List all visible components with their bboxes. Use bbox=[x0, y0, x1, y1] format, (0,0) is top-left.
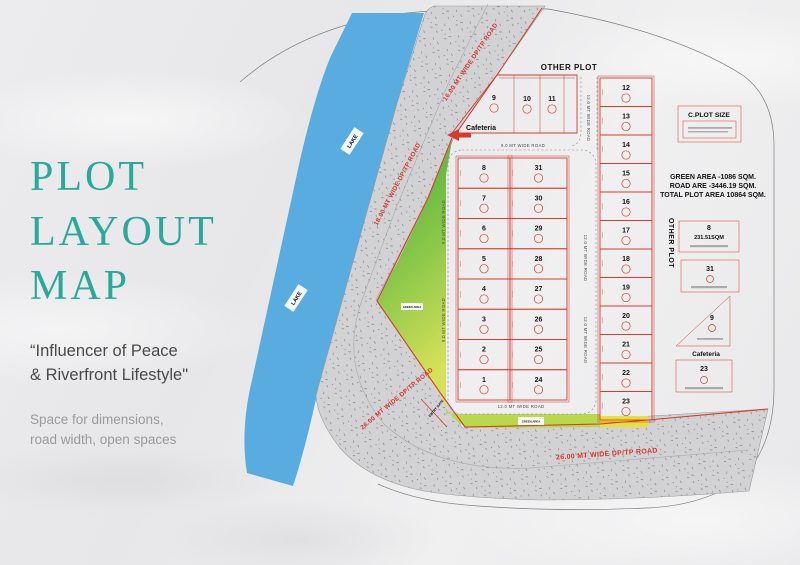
plot-marker-circle bbox=[480, 355, 488, 363]
plot-number-11: 11 bbox=[548, 96, 556, 103]
road-label: 12.0 MT WIDE ROAD bbox=[583, 235, 588, 282]
plot-marker-circle bbox=[701, 377, 708, 384]
stat-total-area: TOTAL PLOT AREA 10864 SQM. bbox=[660, 192, 766, 199]
plot-marker-circle bbox=[534, 295, 542, 303]
plot-cell-28 bbox=[510, 249, 567, 279]
detail-cafeteria-label: Cafeteria bbox=[692, 351, 720, 358]
dimension-tick bbox=[602, 260, 603, 266]
plot-marker-circle bbox=[548, 105, 556, 113]
plot-grid-central_left: 87654321 bbox=[456, 156, 512, 402]
dimension-tick bbox=[602, 118, 603, 124]
plot-marker-circle bbox=[622, 179, 630, 187]
dimension-tick bbox=[512, 200, 513, 206]
detail-area: 231.51SQM bbox=[694, 235, 724, 241]
plot-number-25: 25 bbox=[535, 347, 543, 354]
dimension-tick bbox=[602, 374, 603, 380]
plot-cell-7 bbox=[458, 188, 510, 218]
plot-number-19: 19 bbox=[622, 285, 630, 292]
dimension-tick bbox=[512, 170, 513, 176]
plot-number-16: 16 bbox=[622, 199, 630, 206]
plot-number-29: 29 bbox=[535, 226, 543, 233]
plot-marker-circle bbox=[534, 234, 542, 242]
road-label: 12.0 MT WIDE ROAD bbox=[586, 95, 591, 142]
page: PLOT LAYOUT MAP “Influencer of Peace & R… bbox=[0, 0, 800, 565]
road-label: 12.0 MT WIDE ROAD bbox=[583, 317, 588, 364]
plot-marker-circle bbox=[622, 151, 630, 159]
plot-marker-circle bbox=[707, 276, 714, 283]
plot-grid-east: 121314151617181920212223 bbox=[598, 76, 654, 422]
plot-number-8: 8 bbox=[482, 165, 486, 172]
plot-marker-circle bbox=[622, 94, 630, 102]
plot-number-15: 15 bbox=[622, 171, 630, 178]
plot-number-6: 6 bbox=[482, 226, 486, 233]
plot-number-20: 20 bbox=[622, 313, 630, 320]
green-area-label-2: GREEN AREA bbox=[518, 417, 544, 425]
plot-marker-circle bbox=[534, 325, 542, 333]
plot-marker-circle bbox=[534, 265, 542, 273]
detail-number: 8 bbox=[707, 225, 711, 232]
plot-number-12: 12 bbox=[622, 85, 630, 92]
plot-cell-25 bbox=[510, 340, 567, 370]
svg-text:GREEN AREA: GREEN AREA bbox=[522, 420, 541, 424]
plot-number-22: 22 bbox=[622, 370, 630, 377]
dimension-tick bbox=[460, 200, 461, 206]
detail-fine-print bbox=[685, 387, 723, 389]
plot-cell-2 bbox=[458, 340, 510, 370]
dimension-tick bbox=[602, 203, 603, 209]
plot-marker-circle bbox=[622, 208, 630, 216]
dimension-tick bbox=[602, 89, 603, 95]
plot-marker-circle bbox=[534, 386, 542, 394]
road-label: 12.0 MT WIDE ROAD bbox=[498, 404, 545, 409]
plot-number-18: 18 bbox=[622, 256, 630, 263]
green-area-label-1: GREEN AREA bbox=[401, 303, 423, 310]
detail-number: 9 bbox=[710, 315, 714, 322]
plot-marker-circle bbox=[622, 122, 630, 130]
plot-cell-24 bbox=[510, 370, 567, 400]
cafeteria-label: Cafeteria bbox=[466, 125, 496, 132]
road-label: 9.0 MT WIDE ROAD bbox=[441, 298, 446, 342]
plot-cell-5 bbox=[458, 249, 510, 279]
plot-number-1: 1 bbox=[482, 377, 486, 384]
plot-marker-circle bbox=[480, 386, 488, 394]
dimension-tick bbox=[512, 231, 513, 237]
plot-marker-circle bbox=[622, 379, 630, 387]
dimension-tick bbox=[602, 317, 603, 323]
plot-layout-map: Cafeteria OTHER PLOT OTHER PLOT GREEN AR… bbox=[0, 0, 800, 565]
plot-number-9: 9 bbox=[492, 95, 496, 102]
plot-marker-circle bbox=[534, 174, 542, 182]
dimension-tick bbox=[512, 382, 513, 388]
detail-number: 23 bbox=[700, 366, 708, 373]
dimension-tick bbox=[602, 289, 603, 295]
plot-cell-4 bbox=[458, 279, 510, 309]
plot-number-31: 31 bbox=[535, 165, 543, 172]
plot-cell-1 bbox=[458, 370, 510, 400]
detail-fine-print bbox=[691, 286, 727, 288]
svg-text:GREEN AREA: GREEN AREA bbox=[403, 305, 422, 309]
dimension-tick bbox=[602, 346, 603, 352]
detail-box-plot-8: 8231.51SQM bbox=[679, 221, 739, 252]
plot-number-10: 10 bbox=[523, 96, 531, 103]
dimension-tick bbox=[460, 261, 461, 267]
dimension-tick bbox=[602, 146, 603, 152]
plot-marker-circle bbox=[480, 325, 488, 333]
detail-fine-print bbox=[697, 338, 723, 340]
dimension-tick bbox=[460, 382, 461, 388]
plot-marker-circle bbox=[490, 104, 498, 112]
dimension-tick bbox=[460, 321, 461, 327]
plot-number-5: 5 bbox=[482, 256, 486, 263]
plot-grid-central_right: 3130292827262524 bbox=[508, 156, 569, 402]
plot-number-7: 7 bbox=[482, 195, 486, 202]
plot-marker-circle bbox=[622, 293, 630, 301]
dimension-tick bbox=[460, 170, 461, 176]
plot-cell-29 bbox=[510, 219, 567, 249]
stat-green-area: GREEN AREA -1086 SQM. bbox=[670, 174, 756, 181]
dimension-tick bbox=[460, 352, 461, 358]
dimension-tick bbox=[602, 175, 603, 181]
detail-box-plot-23: 23 bbox=[676, 360, 732, 392]
plot-number-26: 26 bbox=[535, 316, 543, 323]
c-plot-size-box: C.PLOT SIZE bbox=[678, 106, 741, 142]
plot-number-28: 28 bbox=[535, 256, 543, 263]
road-label: 9.0 MT WIDE ROAD bbox=[441, 200, 446, 244]
other-plot-side-label: OTHER PLOT bbox=[667, 218, 674, 268]
plot-number-3: 3 bbox=[482, 316, 486, 323]
plot-marker-circle bbox=[480, 174, 488, 182]
plot-cell-27 bbox=[510, 279, 567, 309]
dimension-tick bbox=[512, 321, 513, 327]
plot-marker-circle bbox=[534, 355, 542, 363]
plot-marker-circle bbox=[523, 105, 531, 113]
plot-marker-circle bbox=[480, 295, 488, 303]
dimension-tick bbox=[512, 352, 513, 358]
plot-marker-circle bbox=[622, 265, 630, 273]
plot-number-13: 13 bbox=[622, 114, 630, 121]
detail-number: 31 bbox=[706, 266, 714, 273]
plot-number-4: 4 bbox=[482, 286, 486, 293]
dimension-tick bbox=[512, 291, 513, 297]
dimension-tick bbox=[602, 403, 603, 409]
road-label: 9.0 MT WIDE ROAD bbox=[501, 143, 545, 148]
plot-marker-circle bbox=[480, 234, 488, 242]
plot-cell-31 bbox=[510, 158, 567, 188]
plot-number-17: 17 bbox=[622, 228, 630, 235]
plot-number-24: 24 bbox=[535, 377, 543, 384]
plot-cell-8 bbox=[458, 158, 510, 188]
plot-number-14: 14 bbox=[622, 142, 630, 149]
plot-number-23: 23 bbox=[622, 399, 630, 406]
plot-number-2: 2 bbox=[482, 347, 486, 354]
plot-marker-circle bbox=[622, 322, 630, 330]
plot-cell-26 bbox=[510, 309, 567, 339]
plot-number-30: 30 bbox=[535, 195, 543, 202]
plot-marker-circle bbox=[622, 350, 630, 358]
dimension-tick bbox=[460, 231, 461, 237]
plot-marker-circle bbox=[480, 204, 488, 212]
area-stats: GREEN AREA -1086 SQM. ROAD ARE -3446.19 … bbox=[660, 174, 766, 199]
dimension-tick bbox=[460, 291, 461, 297]
dimension-tick bbox=[602, 232, 603, 238]
plot-cell-6 bbox=[458, 219, 510, 249]
plot-marker-circle bbox=[622, 236, 630, 244]
c-plot-size-title: C.PLOT SIZE bbox=[688, 112, 730, 119]
detail-box-plot-31: 31 bbox=[681, 260, 739, 292]
plot-marker-circle bbox=[480, 265, 488, 273]
plot-marker-circle bbox=[534, 204, 542, 212]
plot-number-27: 27 bbox=[535, 286, 543, 293]
dimension-tick bbox=[512, 261, 513, 267]
detail-box-plot-9: 9Cafeteria bbox=[676, 296, 730, 358]
plot-cell-3 bbox=[458, 309, 510, 339]
plot-number-21: 21 bbox=[622, 342, 630, 349]
plot-cell-30 bbox=[510, 188, 567, 218]
detail-fine-print bbox=[690, 245, 728, 247]
stat-road-area: ROAD ARE -3446.19 SQM. bbox=[670, 183, 757, 190]
other-plot-top-label: OTHER PLOT bbox=[541, 63, 598, 72]
plot-marker-circle bbox=[709, 325, 716, 332]
plot-marker-circle bbox=[622, 407, 630, 415]
